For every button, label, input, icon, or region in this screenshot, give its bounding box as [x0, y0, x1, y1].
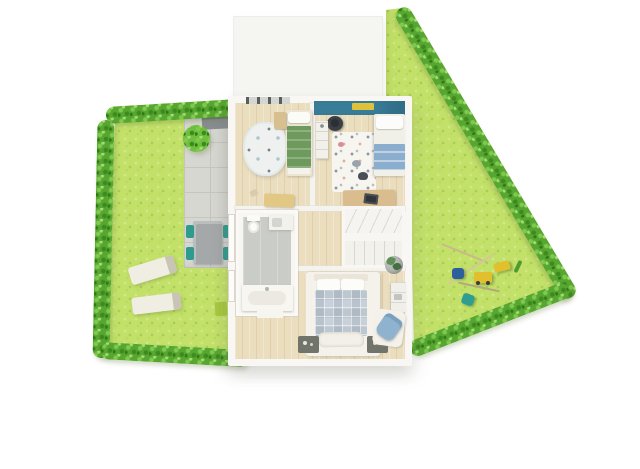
faucet	[265, 287, 269, 291]
floorplan-scene	[0, 0, 640, 469]
cloud-play-rug	[243, 122, 287, 176]
yellow-wall-shelf	[352, 103, 374, 110]
desk	[343, 190, 395, 208]
house	[228, 96, 412, 366]
watering-can-toy	[452, 268, 464, 279]
black-desk-chair	[327, 116, 343, 131]
candle	[310, 343, 313, 346]
kids-bed-left	[286, 110, 312, 176]
pillow	[376, 116, 403, 129]
washbasin-cabinet	[269, 215, 293, 230]
patio-chair	[186, 225, 194, 238]
outdoor-table	[193, 221, 222, 263]
winder-steps	[345, 209, 402, 233]
storage-bench	[264, 193, 294, 207]
garage-roof	[233, 16, 383, 102]
truck-wheel	[476, 281, 480, 285]
patio-chair	[186, 247, 194, 260]
truck-wheel	[486, 281, 490, 285]
blue-blanket	[374, 144, 405, 170]
pattern-rug	[332, 132, 376, 192]
laptop	[363, 193, 378, 205]
kids-bed-right	[374, 114, 405, 176]
foot-blanket	[318, 332, 364, 348]
toilet	[247, 215, 260, 233]
toy-truck	[474, 272, 492, 283]
sink-recess	[248, 291, 286, 305]
rug-motif	[358, 172, 368, 180]
candle	[303, 341, 307, 345]
basin	[272, 218, 282, 227]
vanity-extension	[257, 309, 283, 318]
green-blanket	[287, 126, 311, 168]
dresser	[391, 282, 406, 312]
nightstand-left	[298, 336, 319, 353]
shelf-unit	[316, 121, 328, 159]
rug-motif	[352, 160, 361, 167]
round-bush	[183, 125, 210, 152]
window-left-upper	[228, 214, 235, 262]
dresser-item	[394, 294, 402, 300]
bed-foot-sheet	[288, 168, 310, 174]
checkered-duvet	[315, 290, 367, 336]
chair-seat	[331, 119, 339, 127]
master-bed	[314, 274, 368, 348]
stair-landing	[345, 233, 402, 241]
headboard-cabinet	[274, 112, 286, 129]
pillow	[288, 112, 310, 123]
green-mat	[215, 302, 228, 317]
rug-motif	[338, 142, 344, 147]
bathroom	[236, 210, 298, 316]
window-top-bedroom1	[246, 97, 290, 104]
window-left-lower	[228, 270, 235, 302]
vanity-sink	[242, 285, 293, 311]
toilet-bowl	[248, 221, 259, 233]
potted-plant	[383, 254, 405, 276]
